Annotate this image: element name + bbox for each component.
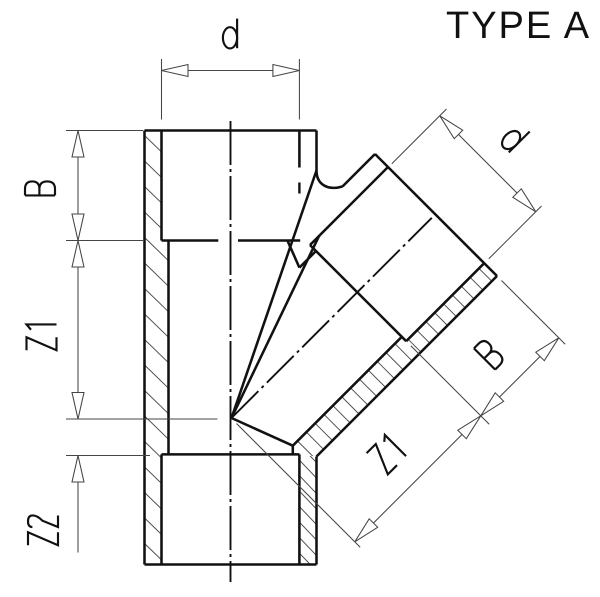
svg-text:TYPE A: TYPE A	[446, 5, 591, 47]
